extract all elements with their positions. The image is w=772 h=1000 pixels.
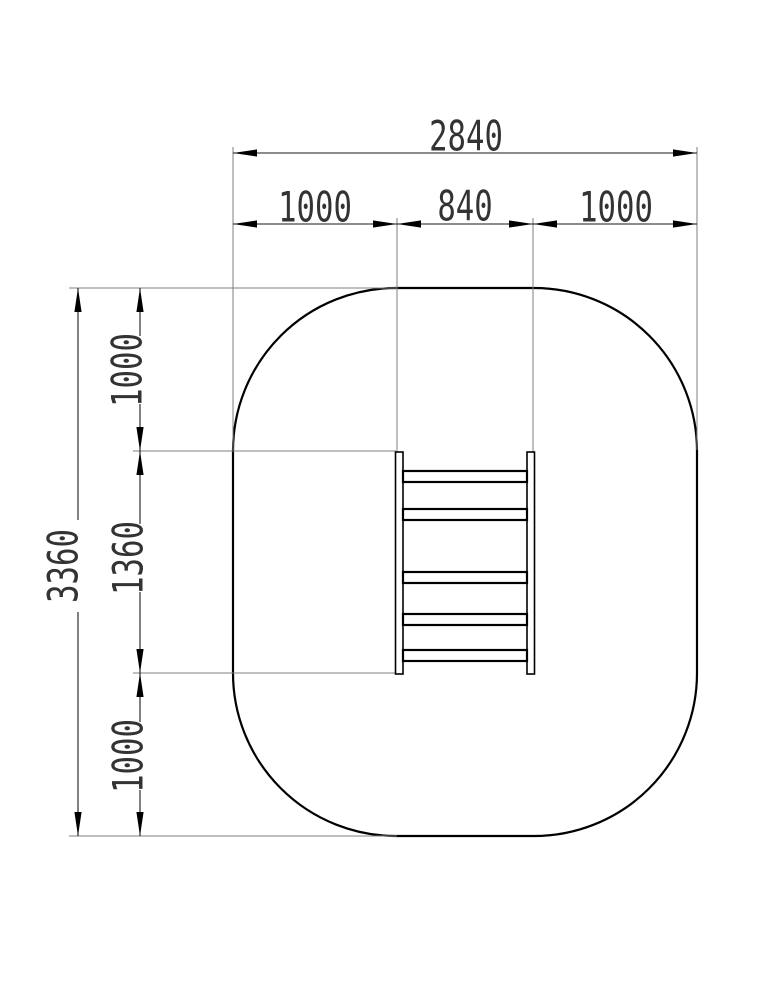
dim-label-middle-height: 1360 bbox=[103, 521, 152, 595]
dim-label-total-height: 3360 bbox=[38, 529, 87, 603]
arrowheads bbox=[74, 149, 697, 836]
ladder bbox=[396, 452, 535, 674]
arrowhead bbox=[136, 812, 143, 836]
arrowhead bbox=[397, 220, 421, 227]
dim-label-left-width: 1000 bbox=[278, 182, 352, 231]
ladder-rung bbox=[403, 614, 527, 625]
dim-label-right-width: 1000 bbox=[579, 182, 653, 231]
cad-drawing-page: 2840 1000 840 1000 3360 1000 1360 1000 bbox=[0, 0, 772, 1000]
extension-lines bbox=[69, 147, 697, 836]
ladder-rung bbox=[403, 471, 527, 482]
arrowhead bbox=[373, 220, 397, 227]
dimension-lines bbox=[78, 153, 697, 836]
arrowhead bbox=[233, 149, 257, 156]
arrowhead bbox=[673, 149, 697, 156]
safety-area-outline bbox=[233, 288, 697, 836]
dim-label-total-width: 2840 bbox=[429, 111, 503, 160]
arrowhead bbox=[74, 288, 81, 312]
ladder-rung bbox=[403, 509, 527, 520]
arrowhead bbox=[136, 288, 143, 312]
ladder-right-rail bbox=[527, 452, 535, 674]
dimension-labels: 2840 1000 840 1000 3360 1000 1360 1000 bbox=[38, 111, 652, 792]
arrowhead bbox=[74, 812, 81, 836]
arrowhead bbox=[136, 649, 143, 673]
arrowhead bbox=[533, 220, 557, 227]
arrowhead bbox=[136, 673, 143, 697]
dim-label-middle-width: 840 bbox=[437, 181, 492, 230]
dim-label-top-height: 1000 bbox=[102, 333, 151, 407]
arrowhead bbox=[233, 220, 257, 227]
arrowhead bbox=[136, 451, 143, 475]
dim-label-bottom-height: 1000 bbox=[103, 719, 152, 793]
ladder-left-rail bbox=[396, 452, 404, 674]
technical-drawing-canvas: 2840 1000 840 1000 3360 1000 1360 1000 bbox=[0, 0, 772, 1000]
arrowhead bbox=[509, 220, 533, 227]
arrowhead bbox=[673, 220, 697, 227]
ladder-rung bbox=[403, 572, 527, 583]
ladder-rung bbox=[403, 650, 527, 661]
arrowhead bbox=[136, 427, 143, 451]
